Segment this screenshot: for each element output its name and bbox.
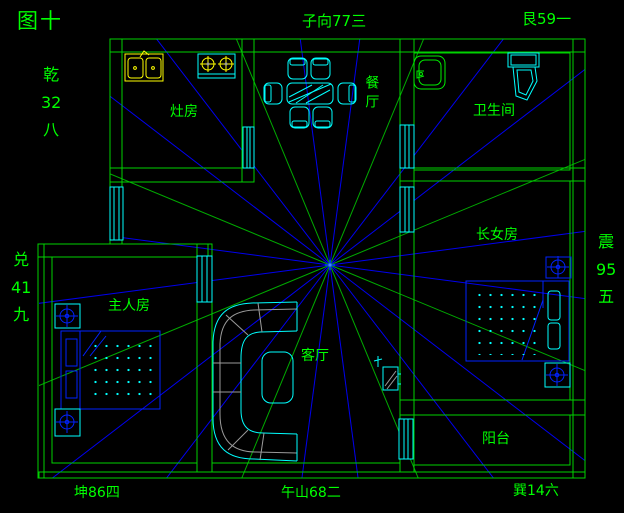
sector-ray <box>0 192 330 265</box>
mattress-dots-daughter <box>472 287 536 355</box>
window-icon <box>399 419 413 459</box>
compass-label-top-center: 子向77三 <box>302 13 366 30</box>
compass-char: 九 <box>11 306 31 324</box>
compass-char: 八 <box>41 121 61 139</box>
room-label-living: 客厅 <box>301 349 329 364</box>
coffee-table <box>262 352 293 403</box>
wall-top <box>110 39 585 52</box>
compass-label-right: 震 95 五 <box>596 233 616 306</box>
floorplan-canvas <box>0 0 624 513</box>
figure-title: 图十 <box>17 10 63 33</box>
compass-center-marker <box>325 260 335 270</box>
nightstand-lamp <box>546 256 571 278</box>
window-icon <box>110 187 123 240</box>
room-label-master: 主人房 <box>108 299 150 314</box>
compass-label-left-upper: 乾 32 八 <box>41 66 61 139</box>
compass-label-bottom-right: 巽14六 <box>513 484 559 499</box>
nightstand-lamp <box>545 363 570 387</box>
room-label-daughter: 长女房 <box>476 228 518 243</box>
window-icon <box>400 187 414 232</box>
sector-ray <box>330 0 544 265</box>
room-label-balcony: 阳台 <box>482 432 510 447</box>
sector-ray <box>330 0 403 265</box>
compass-number: 41 <box>11 279 31 297</box>
sector-ray <box>330 0 624 265</box>
compass-label-left-lower: 兑 41 九 <box>11 251 31 324</box>
mattress-dots-master <box>88 338 156 404</box>
room-label-dining: 餐厅 <box>363 75 378 113</box>
room-label-kitchen: 灶房 <box>170 105 198 120</box>
wall-right <box>573 39 585 478</box>
cad-floorplan-screen: 图十 子向77三 艮59一 乾 32 八 兑 41 九 震 95 五 坤86四 … <box>0 0 624 513</box>
sector-ray <box>116 0 330 265</box>
wall-daughter-bottom <box>400 400 585 415</box>
window-icon <box>243 127 254 168</box>
compass-number: 95 <box>596 261 616 279</box>
compass-label-bottom-center: 午山68二 <box>281 486 341 501</box>
compass-char: 五 <box>596 288 616 306</box>
bathroom-sink <box>414 56 445 89</box>
toilet <box>508 53 539 100</box>
room-label-bathroom: 卫生间 <box>473 104 515 119</box>
sector-ray <box>0 265 330 338</box>
stove <box>198 54 235 78</box>
compass-char: 震 <box>596 233 616 251</box>
window-icon <box>197 256 212 302</box>
wall-left-lower <box>38 244 44 478</box>
dining-table <box>287 83 333 104</box>
compass-char: 乾 <box>41 66 61 84</box>
nightstand-lamp <box>55 304 80 328</box>
sector-ray <box>330 0 624 265</box>
tv <box>374 356 401 390</box>
wall-bottom <box>39 472 585 478</box>
sector-ray <box>257 0 330 265</box>
compass-label-bottom-left: 坤86四 <box>74 486 120 501</box>
wall-kitchen-bottom <box>110 168 254 182</box>
kitchen-sink <box>125 51 163 81</box>
sector-ray <box>0 265 330 479</box>
nightstand-lamp <box>55 409 80 436</box>
compass-char: 兑 <box>11 251 31 269</box>
window-icon <box>400 125 414 168</box>
compass-label-top-right: 艮59一 <box>522 11 571 28</box>
sofa <box>213 302 297 461</box>
compass-number: 32 <box>41 94 61 112</box>
